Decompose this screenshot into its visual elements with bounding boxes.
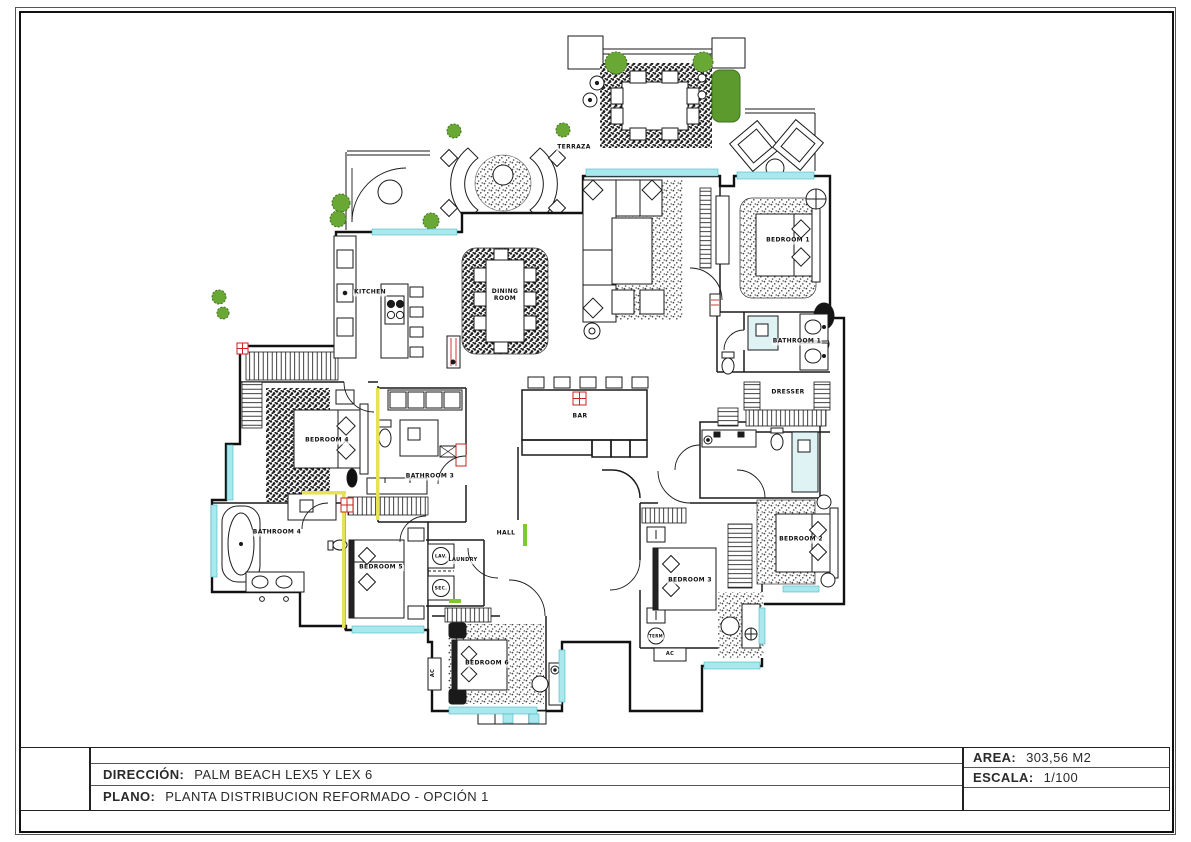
room-labels-layer: TERRAZAKITCHENDINING ROOMBEDROOM 1BATHRO… — [0, 0, 1191, 742]
room-label-bathroom-4: BATHROOM 4 — [252, 530, 302, 537]
room-label-lav: LAV. — [434, 554, 448, 559]
plano-row: PLANO: PLANTA DISTRIBUCION REFORMADO - O… — [91, 786, 962, 807]
direccion-label: DIRECCIÓN: — [103, 767, 184, 782]
plano-value: PLANTA DISTRIBUCION REFORMADO - OPCIÓN 1 — [165, 789, 488, 804]
room-label-ac-bedroom-3: AC — [665, 652, 675, 658]
room-label-bedroom-2: BEDROOM 2 — [778, 537, 824, 544]
room-label-bedroom-6: BEDROOM 6 — [464, 661, 510, 668]
room-label-laundry: LAUNDRY — [448, 558, 479, 564]
drawing-sheet: TERRAZAKITCHENDINING ROOMBEDROOM 1BATHRO… — [0, 0, 1191, 842]
escala-row: ESCALA: 1/100 — [964, 768, 1169, 788]
room-label-term: TERM — [648, 635, 664, 640]
room-label-ac-bedroom-6: AC — [431, 668, 437, 678]
titleblock-right: AREA: 303,56 M2 ESCALA: 1/100 — [963, 747, 1170, 811]
room-label-bedroom-3: BEDROOM 3 — [667, 578, 713, 585]
room-label-bedroom-1: BEDROOM 1 — [765, 238, 811, 245]
room-label-bar: BAR — [572, 414, 589, 421]
room-label-terraza: TERRAZA — [556, 145, 592, 152]
area-row: AREA: 303,56 M2 — [964, 748, 1169, 768]
room-label-dresser: DRESSER — [770, 390, 805, 397]
titleblock-main: DIRECCIÓN: PALM BEACH LEX5 Y LEX 6 PLANO… — [90, 747, 963, 811]
room-label-bedroom-5: BEDROOM 5 — [358, 565, 404, 572]
room-label-sec: SEC. — [434, 586, 449, 591]
titleblock-spacer — [91, 748, 962, 764]
direccion-value: PALM BEACH LEX5 Y LEX 6 — [194, 767, 372, 782]
room-label-kitchen: KITCHEN — [353, 290, 387, 297]
room-label-hall: HALL — [496, 531, 517, 538]
escala-label: ESCALA: — [973, 770, 1034, 785]
plano-label: PLANO: — [103, 789, 155, 804]
room-label-bathroom-1: BATHROOM 1 — [772, 339, 822, 346]
area-label: AREA: — [973, 750, 1016, 765]
escala-value: 1/100 — [1044, 770, 1079, 785]
area-value: 303,56 M2 — [1026, 750, 1091, 765]
room-label-bathroom-3: BATHROOM 3 — [405, 474, 455, 481]
room-label-dining-room: DINING ROOM — [491, 289, 520, 303]
direccion-row: DIRECCIÓN: PALM BEACH LEX5 Y LEX 6 — [91, 764, 962, 786]
titleblock-empty-row — [964, 788, 1169, 810]
titleblock-corner-box — [20, 747, 90, 811]
room-label-bedroom-4: BEDROOM 4 — [304, 438, 350, 445]
